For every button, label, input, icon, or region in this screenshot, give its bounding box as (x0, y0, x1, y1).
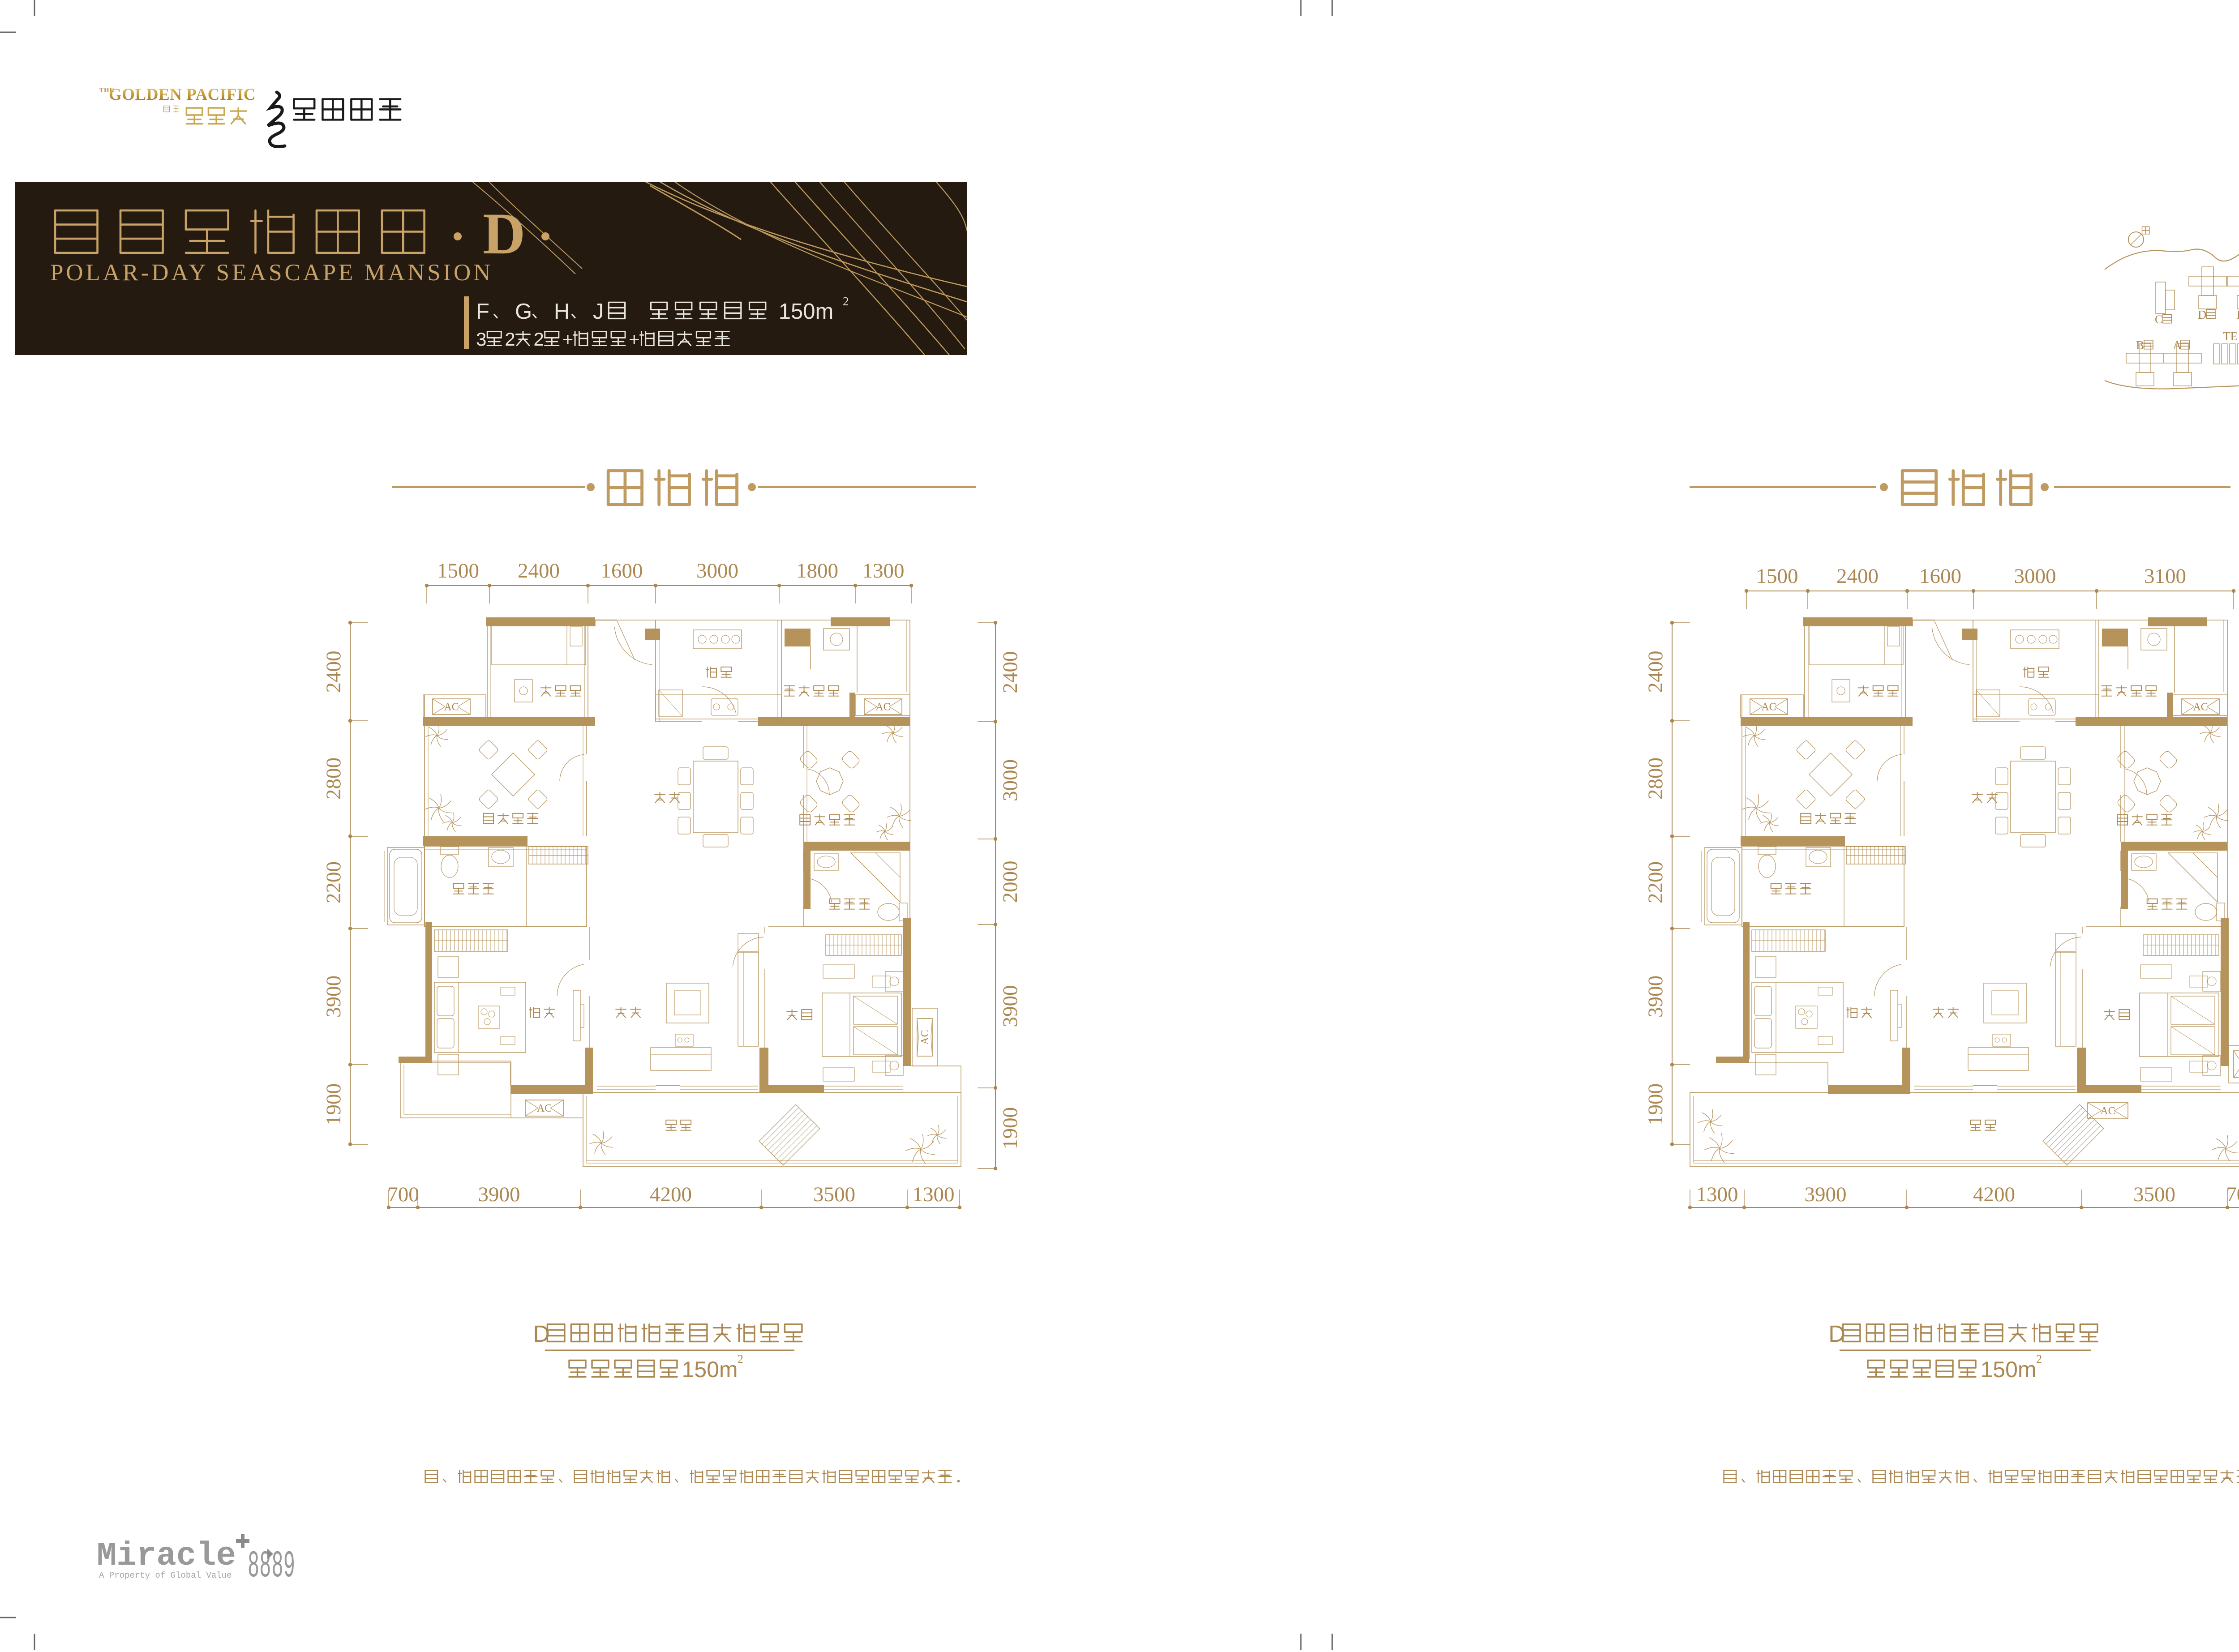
svg-text:150m: 150m (1981, 1357, 2037, 1382)
svg-text:700: 700 (2226, 1183, 2239, 1206)
svg-text:3900: 3900 (322, 976, 345, 1018)
svg-text:4200: 4200 (650, 1183, 692, 1206)
svg-text:89: 89 (272, 1545, 295, 1588)
svg-text:AC: AC (444, 702, 459, 713)
svg-text:1900: 1900 (322, 1083, 345, 1126)
svg-text:3500: 3500 (813, 1183, 855, 1206)
svg-text:2200: 2200 (322, 861, 345, 903)
svg-text:J: J (593, 300, 604, 324)
svg-text:TE: TE (2223, 330, 2238, 343)
svg-text:D: D (2198, 308, 2207, 321)
svg-text:1900: 1900 (999, 1107, 1022, 1149)
svg-text:AC: AC (919, 1030, 931, 1044)
svg-text:A: A (2173, 338, 2182, 352)
svg-text:3000: 3000 (2014, 565, 2056, 588)
svg-text:AC: AC (2100, 1105, 2115, 1117)
svg-text:3900: 3900 (1805, 1183, 1847, 1206)
svg-text:150m: 150m (682, 1357, 738, 1382)
svg-text:1300: 1300 (1696, 1183, 1738, 1206)
svg-text:3000: 3000 (696, 559, 738, 582)
svg-text:1900: 1900 (1644, 1083, 1667, 1126)
svg-text:1500: 1500 (437, 559, 479, 582)
svg-text:4200: 4200 (1973, 1183, 2015, 1206)
svg-text:150m: 150m (772, 300, 833, 324)
svg-text:GOLDEN PACIFIC: GOLDEN PACIFIC (109, 86, 256, 104)
svg-text:1600: 1600 (1919, 565, 1961, 588)
svg-text:1800: 1800 (796, 559, 838, 582)
svg-text:3500: 3500 (2133, 1183, 2175, 1206)
svg-text:3900: 3900 (1644, 976, 1667, 1018)
svg-text:2: 2 (843, 295, 849, 308)
svg-text:POLAR-DAY SEASCAPE MANSION: POLAR-DAY SEASCAPE MANSION (50, 260, 493, 286)
svg-text:B: B (2136, 338, 2144, 352)
svg-text:H: H (554, 300, 570, 324)
svg-text:+: + (629, 329, 640, 350)
svg-text:2400: 2400 (1836, 565, 1879, 588)
svg-text:A Property of Global Value: A Property of Global Value (99, 1571, 232, 1580)
svg-text:2000: 2000 (999, 861, 1022, 903)
svg-text:D: D (483, 201, 525, 266)
svg-text:F: F (476, 300, 489, 324)
svg-text:3900: 3900 (478, 1183, 520, 1206)
svg-text:2800: 2800 (1644, 758, 1667, 800)
svg-text:2: 2 (505, 329, 515, 350)
svg-text:2: 2 (534, 329, 544, 350)
svg-text:AC: AC (875, 702, 890, 713)
svg-text:3100: 3100 (2144, 565, 2186, 588)
svg-text:+: + (562, 329, 574, 350)
svg-text:2800: 2800 (322, 758, 345, 800)
svg-text:C: C (2155, 313, 2162, 326)
svg-text:1300: 1300 (862, 559, 905, 582)
svg-text:G: G (515, 300, 532, 324)
svg-text:Miracle: Miracle (97, 1537, 236, 1575)
svg-text:3000: 3000 (999, 759, 1022, 801)
svg-text:AC: AC (537, 1103, 552, 1114)
svg-text:2400: 2400 (322, 651, 345, 693)
svg-text:2: 2 (2036, 1352, 2042, 1365)
svg-text:2200: 2200 (1644, 861, 1667, 903)
svg-text:3: 3 (476, 329, 486, 350)
svg-text:2400: 2400 (999, 651, 1022, 693)
svg-text:E: E (2237, 308, 2239, 321)
svg-text:2400: 2400 (518, 559, 560, 582)
svg-text:2: 2 (738, 1352, 743, 1365)
svg-text:3900: 3900 (999, 985, 1022, 1027)
svg-text:700: 700 (387, 1183, 419, 1206)
svg-text:2400: 2400 (1644, 651, 1667, 693)
svg-text:1500: 1500 (1756, 565, 1798, 588)
svg-text:1300: 1300 (913, 1183, 955, 1206)
svg-text:AC: AC (1761, 702, 1776, 713)
svg-text:AC: AC (2193, 702, 2208, 713)
svg-text:1600: 1600 (601, 559, 643, 582)
